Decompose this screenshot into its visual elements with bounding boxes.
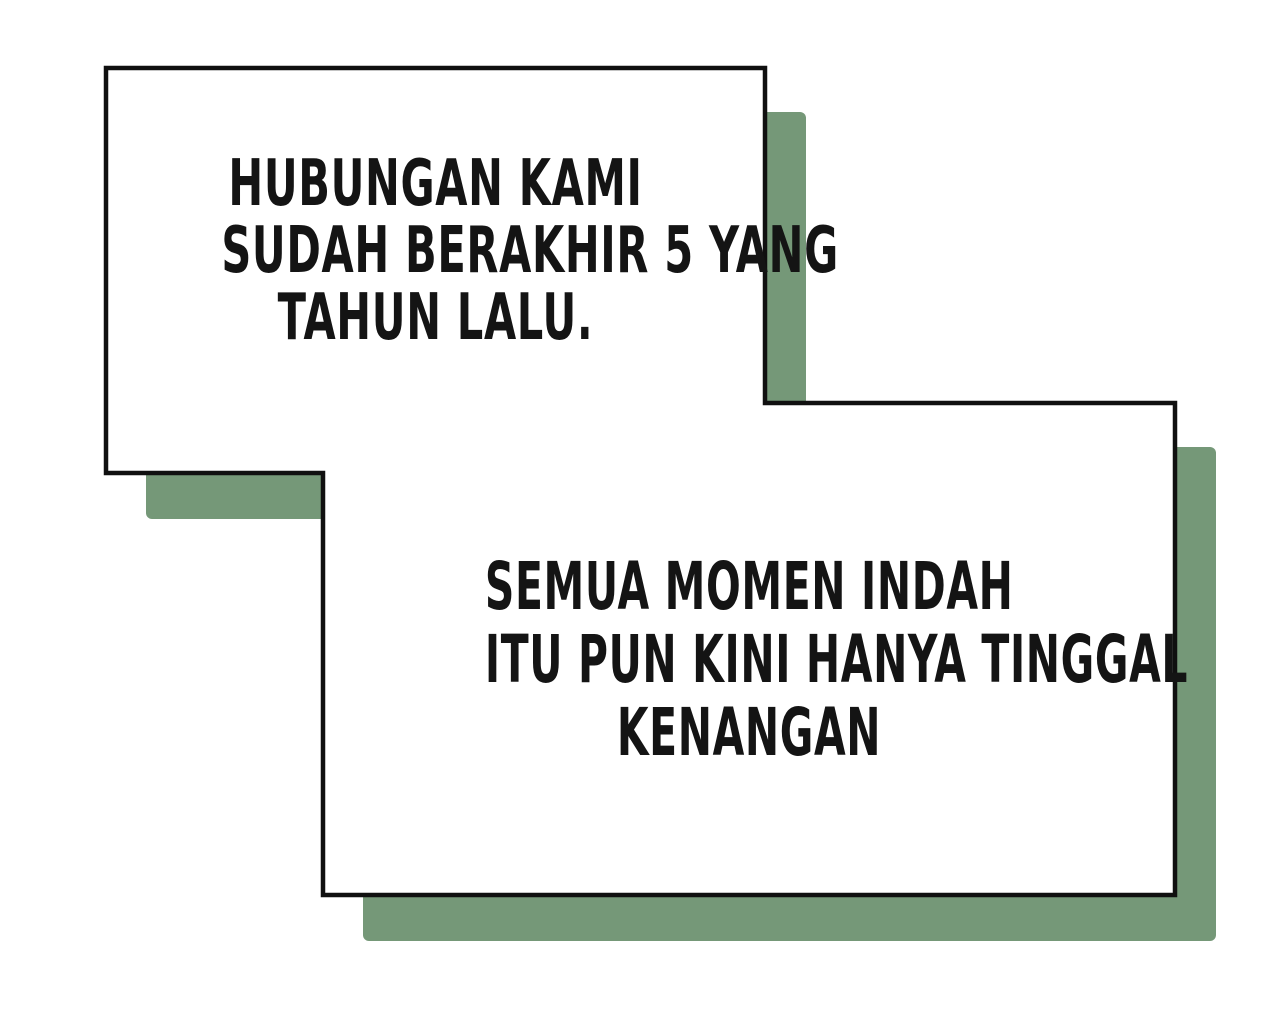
caption1-line3: TAHUN LALU. (221, 285, 649, 352)
caption2-line3: KENANGAN (485, 696, 1013, 769)
comic-page: HUBUNGAN KAMI SUDAH BERAKHIR 5 YANG TAHU… (0, 0, 1280, 1020)
caption1-line1: HUBUNGAN KAMI (221, 151, 649, 218)
caption-panel1: HUBUNGAN KAMI SUDAH BERAKHIR 5 YANG TAHU… (221, 151, 649, 352)
caption2-line2: ITU PUN KINI HANYA TINGGAL (485, 623, 1013, 696)
caption2-line1: SEMUA MOMEN INDAH (485, 550, 1013, 623)
caption-panel2: SEMUA MOMEN INDAH ITU PUN KINI HANYA TIN… (485, 550, 1013, 769)
caption1-line2: SUDAH BERAKHIR 5 YANG (221, 218, 649, 285)
